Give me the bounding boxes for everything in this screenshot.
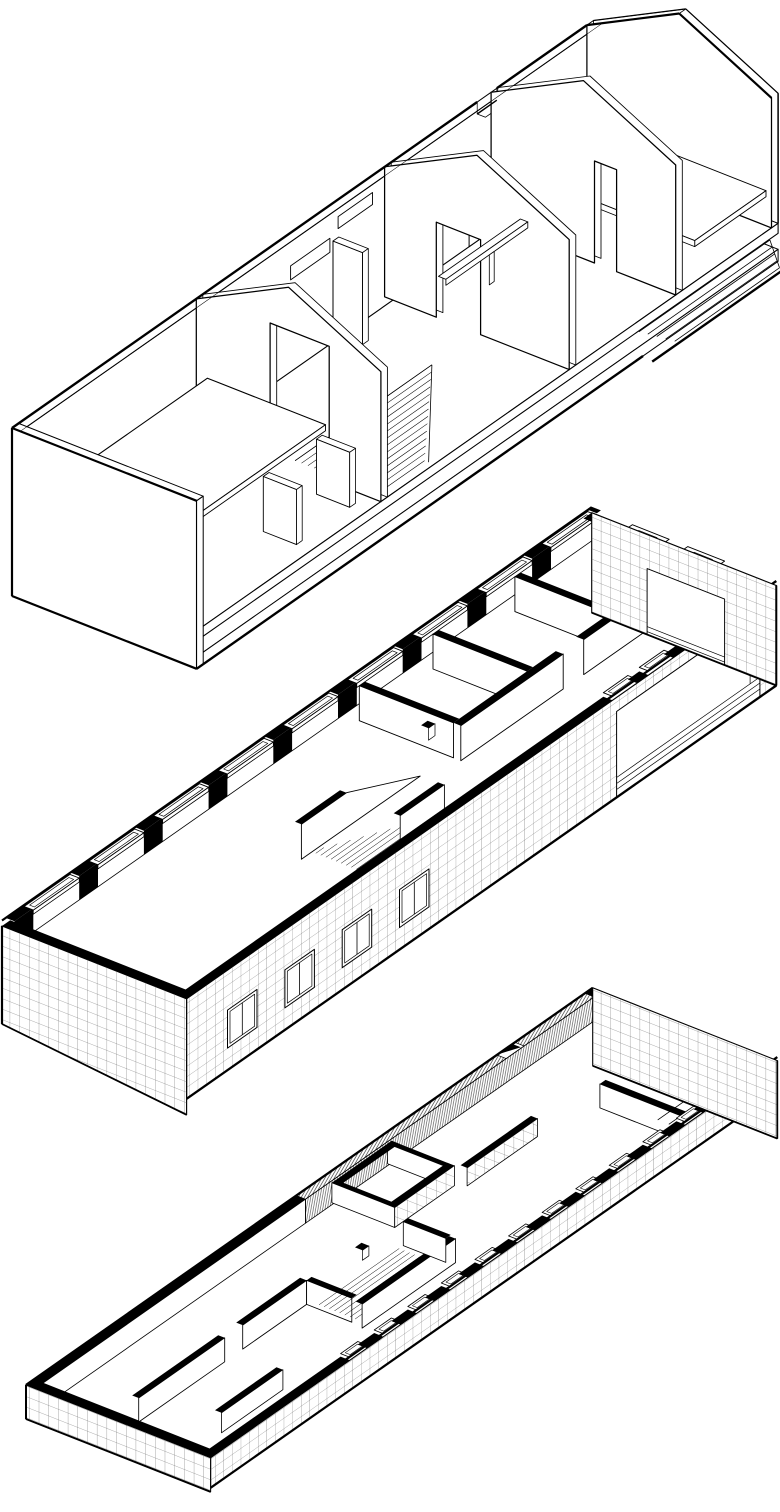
architectural-axonometric: Exploded axonometric drawing of a long b…	[0, 0, 780, 1512]
drawing-canvas: Exploded axonometric drawing of a long b…	[0, 0, 780, 1512]
